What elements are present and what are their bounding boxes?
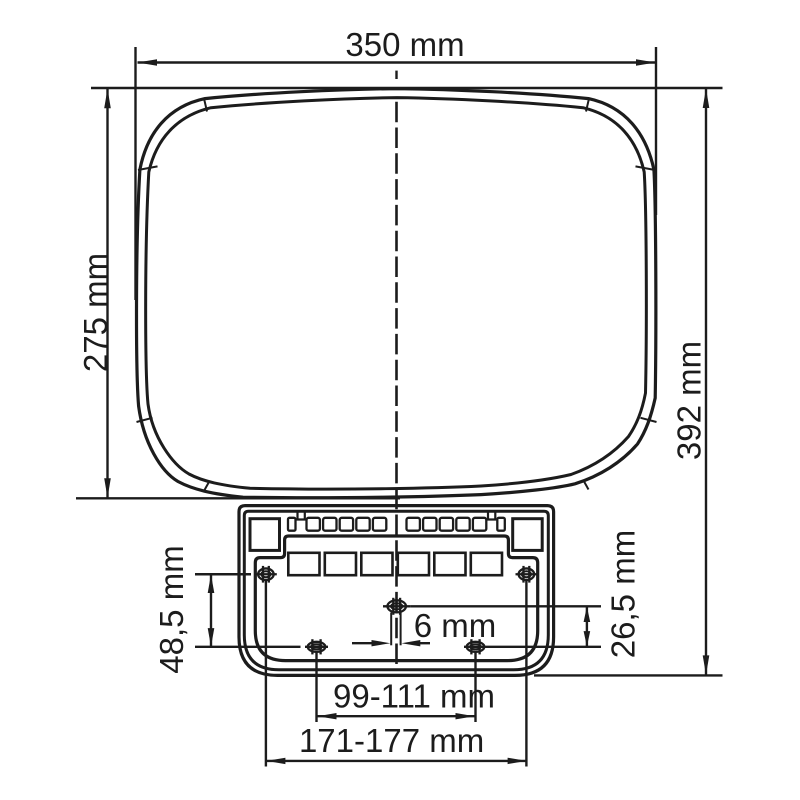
svg-text:275 mm: 275 mm (77, 253, 114, 372)
svg-text:350 mm: 350 mm (345, 26, 464, 63)
svg-text:392 mm: 392 mm (671, 341, 708, 460)
svg-text:99-111 mm: 99-111 mm (333, 678, 495, 715)
svg-text:26,5 mm: 26,5 mm (605, 530, 642, 658)
svg-text:6 mm: 6 mm (414, 607, 497, 644)
svg-text:171-177 mm: 171-177 mm (299, 722, 484, 759)
svg-text:48,5 mm: 48,5 mm (153, 545, 190, 673)
